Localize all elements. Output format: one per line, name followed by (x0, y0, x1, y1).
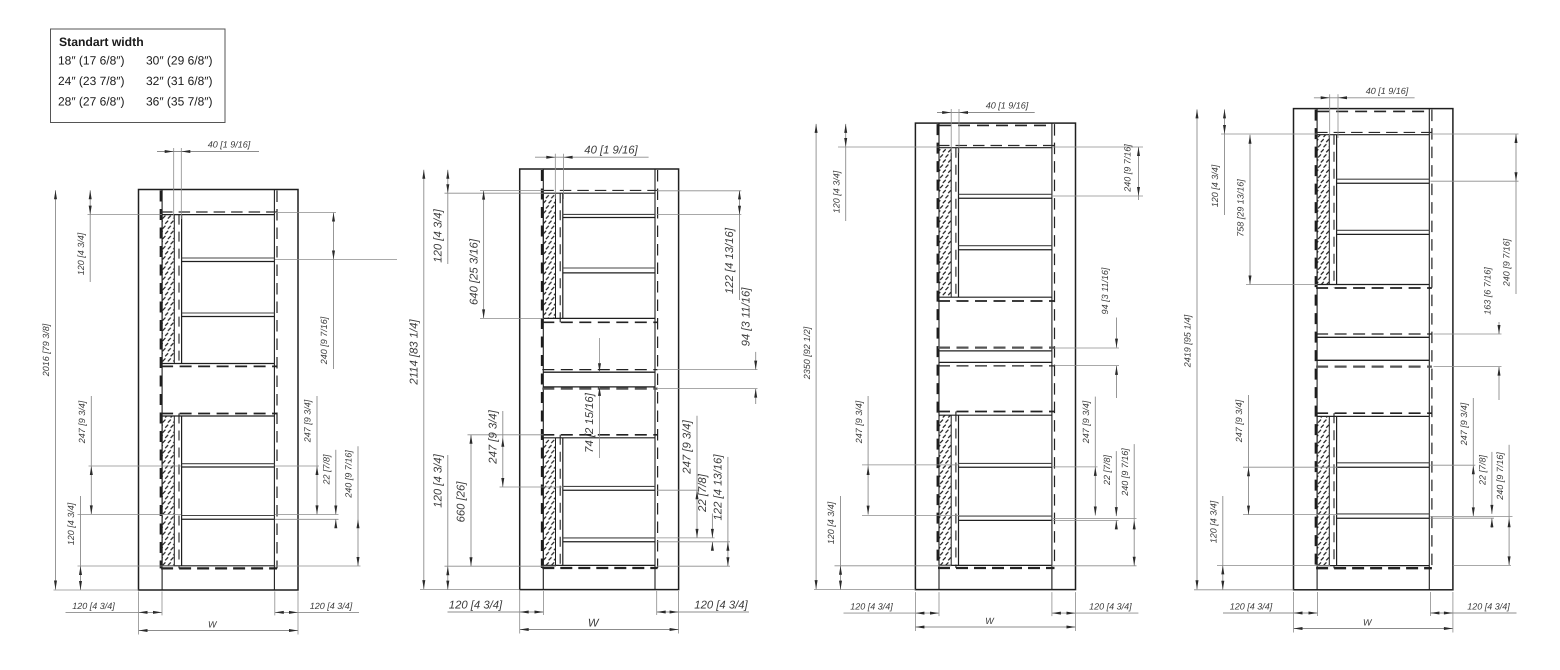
svg-text:247 [9 3/4]: 247 [9 3/4] (303, 399, 313, 443)
svg-text:240 [9 7/16]: 240 [9 7/16] (1120, 448, 1130, 497)
svg-text:94 [3 11/16]: 94 [3 11/16] (1100, 267, 1110, 314)
svg-text:36″ (35 7/8″): 36″ (35 7/8″) (146, 95, 213, 109)
svg-text:40 [1 9/16]: 40 [1 9/16] (208, 140, 251, 150)
svg-text:22 [7/8]: 22 [7/8] (697, 473, 709, 513)
svg-text:94 [3 11/16]: 94 [3 11/16] (740, 287, 752, 347)
svg-text:120 [4 3/4]: 120 [4 3/4] (433, 208, 445, 262)
svg-text:120 [4 3/4]: 120 [4 3/4] (433, 453, 445, 507)
svg-text:758 [29 13/16]: 758 [29 13/16] (1236, 179, 1246, 237)
svg-text:32″ (31 6/8″): 32″ (31 6/8″) (146, 74, 213, 88)
svg-text:120 [4 3/4]: 120 [4 3/4] (850, 602, 893, 612)
svg-text:240 [9 7/16]: 240 [9 7/16] (1502, 238, 1512, 287)
svg-text:660 [26]: 660 [26] (456, 481, 468, 523)
svg-text:247 [9 3/4]: 247 [9 3/4] (1459, 402, 1469, 446)
svg-text:120 [4 3/4]: 120 [4 3/4] (831, 170, 841, 213)
svg-text:2114 [83 1/4]: 2114 [83 1/4] (409, 319, 421, 386)
svg-text:120 [4 3/4]: 120 [4 3/4] (826, 501, 836, 544)
svg-text:240 [9 7/16]: 240 [9 7/16] (1123, 144, 1133, 193)
svg-text:120 [4 3/4]: 120 [4 3/4] (310, 601, 353, 611)
svg-text:22 [7/8]: 22 [7/8] (322, 454, 332, 486)
svg-text:240 [9 7/16]: 240 [9 7/16] (344, 450, 354, 499)
svg-text:122 [4 13/16]: 122 [4 13/16] (724, 227, 736, 294)
svg-text:247 [9 3/4]: 247 [9 3/4] (682, 419, 694, 474)
svg-text:247 [9 3/4]: 247 [9 3/4] (1081, 400, 1091, 444)
svg-text:120 [4 3/4]: 120 [4 3/4] (76, 232, 86, 275)
svg-text:W: W (588, 617, 600, 629)
svg-text:22 [7/8]: 22 [7/8] (1478, 454, 1488, 486)
svg-text:Standart width: Standart width (59, 35, 144, 49)
svg-text:163 [6 7/16]: 163 [6 7/16] (1482, 267, 1492, 315)
svg-text:120 [4 3/4]: 120 [4 3/4] (1209, 500, 1219, 543)
svg-text:120 [4 3/4]: 120 [4 3/4] (66, 502, 76, 545)
svg-text:120 [4 3/4]: 120 [4 3/4] (694, 600, 748, 612)
svg-text:18″ (17 6/8″): 18″ (17 6/8″) (58, 54, 125, 68)
svg-text:120 [4 3/4]: 120 [4 3/4] (72, 601, 115, 611)
svg-text:122 [4 13/16]: 122 [4 13/16] (713, 454, 725, 521)
svg-text:2350 [92 1/2]: 2350 [92 1/2] (802, 326, 812, 380)
svg-text:240 [9 7/16]: 240 [9 7/16] (1495, 452, 1505, 501)
svg-text:120 [4 3/4]: 120 [4 3/4] (1467, 602, 1510, 612)
svg-text:247 [9 3/4]: 247 [9 3/4] (488, 409, 500, 464)
svg-text:120 [4 3/4]: 120 [4 3/4] (1089, 602, 1132, 612)
svg-text:22 [7/8]: 22 [7/8] (1102, 454, 1112, 486)
svg-text:30″ (29 6/8″): 30″ (29 6/8″) (146, 54, 213, 68)
svg-text:24″ (23 7/8″): 24″ (23 7/8″) (58, 74, 125, 88)
svg-text:240 [9 7/16]: 240 [9 7/16] (319, 316, 329, 365)
svg-text:40 [1 9/16]: 40 [1 9/16] (986, 101, 1029, 111)
svg-text:40 [1 9/16]: 40 [1 9/16] (584, 144, 638, 156)
svg-text:2016 [79 3/8]: 2016 [79 3/8] (41, 323, 51, 377)
svg-text:74 [2 15/16]: 74 [2 15/16] (584, 392, 596, 453)
svg-text:247 [9 3/4]: 247 [9 3/4] (854, 400, 864, 444)
svg-text:120 [4 3/4]: 120 [4 3/4] (1230, 602, 1273, 612)
svg-text:W: W (1363, 617, 1373, 627)
svg-text:28″ (27 6/8″): 28″ (27 6/8″) (58, 95, 125, 109)
svg-text:120 [4 3/4]: 120 [4 3/4] (1210, 164, 1220, 207)
svg-text:120 [4 3/4]: 120 [4 3/4] (449, 600, 503, 612)
svg-text:40 [1 9/16]: 40 [1 9/16] (1366, 86, 1409, 96)
svg-text:2419 [95 1/4]: 2419 [95 1/4] (1183, 314, 1193, 368)
svg-text:640 [25 3/16]: 640 [25 3/16] (468, 238, 480, 305)
svg-text:W: W (208, 619, 218, 629)
svg-text:247 [9 3/4]: 247 [9 3/4] (1234, 399, 1244, 443)
svg-text:247 [9 3/4]: 247 [9 3/4] (77, 400, 87, 444)
